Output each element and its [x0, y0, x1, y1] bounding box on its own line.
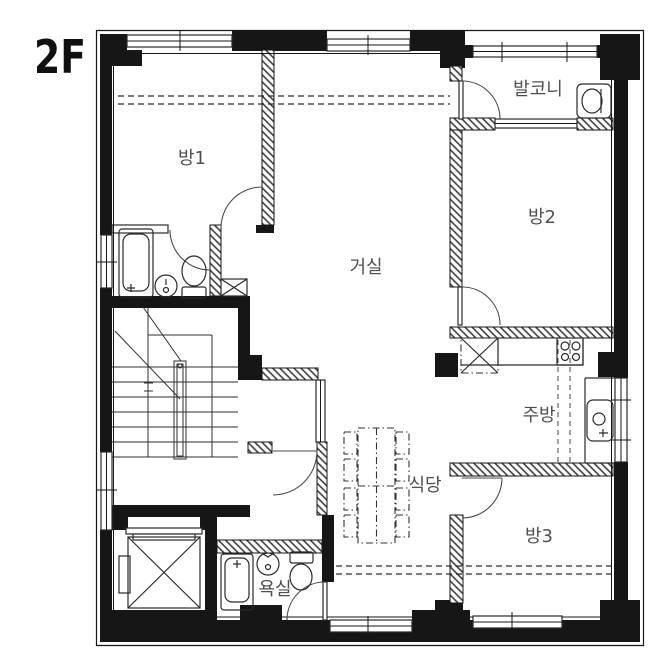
elevator-icon — [119, 528, 202, 608]
washbasin-icon — [155, 275, 177, 297]
washing-machine-icon — [577, 84, 611, 118]
balcony-label: 발코니 — [513, 79, 563, 100]
door-swing — [458, 287, 500, 325]
bathtub-icon — [119, 229, 153, 297]
window — [127, 31, 232, 51]
door-swing — [221, 187, 262, 228]
floor-plan: 2F — [0, 0, 658, 664]
hatched-walls — [210, 50, 613, 603]
kitchen-label: 주방 — [522, 405, 555, 426]
window — [495, 119, 577, 128]
dining-label: 식당 — [408, 475, 441, 496]
dining-table-icon — [344, 428, 409, 543]
kitchen-sink-icon — [587, 400, 613, 441]
room3-label: 방3 — [525, 526, 553, 547]
glass-panel — [316, 380, 325, 442]
living-room-label: 거실 — [349, 257, 382, 278]
window — [473, 42, 597, 62]
room2-label: 방2 — [528, 207, 556, 228]
door-swing — [462, 478, 502, 518]
window — [611, 378, 631, 462]
stairs-icon — [112, 307, 238, 459]
toilet-icon — [290, 552, 313, 590]
bathroom-label: 욕실 — [258, 579, 291, 600]
door-swing — [273, 451, 317, 495]
duct-shaft-icon — [221, 279, 247, 296]
window — [327, 35, 410, 55]
door-swing — [459, 81, 500, 119]
room1-label: 방1 — [178, 148, 206, 169]
bathtub-icon — [221, 554, 253, 610]
floor-label: 2F — [34, 30, 86, 84]
refrigerator-icon — [461, 338, 498, 373]
washbasin-icon — [257, 553, 279, 575]
